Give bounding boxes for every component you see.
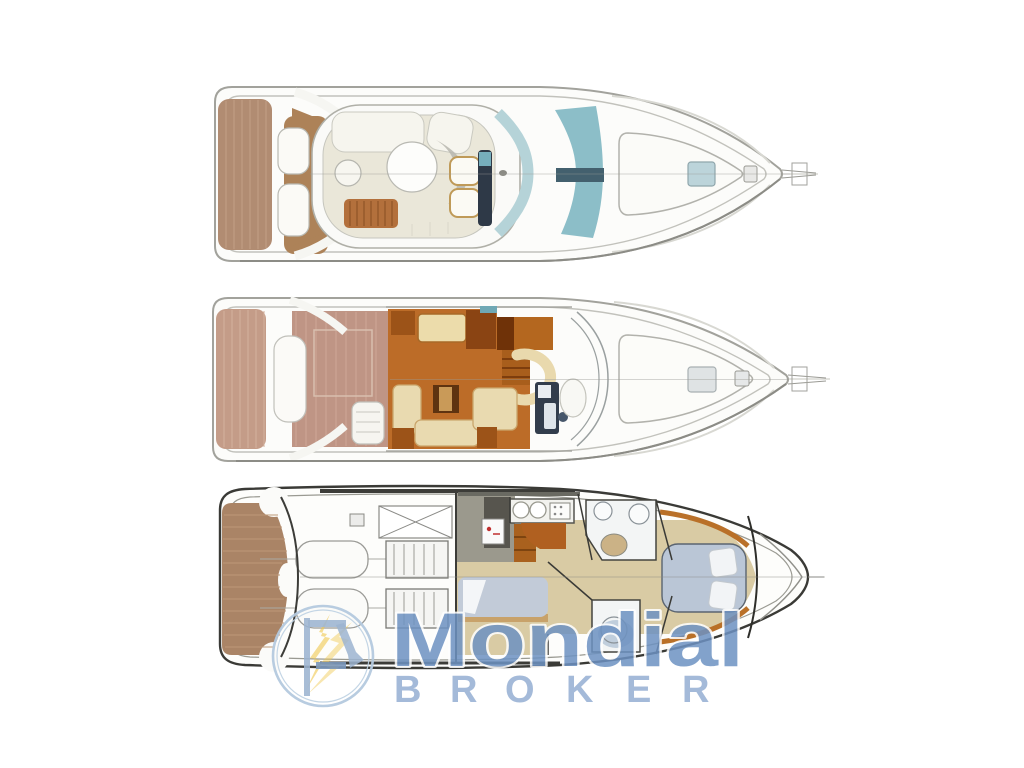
svg-text:K: K (566, 669, 594, 711)
svg-text:O: O (505, 669, 535, 711)
svg-text:R: R (682, 669, 709, 711)
svg-text:B: B (394, 669, 421, 711)
svg-text:E: E (626, 669, 651, 711)
svg-text:R: R (450, 669, 477, 711)
